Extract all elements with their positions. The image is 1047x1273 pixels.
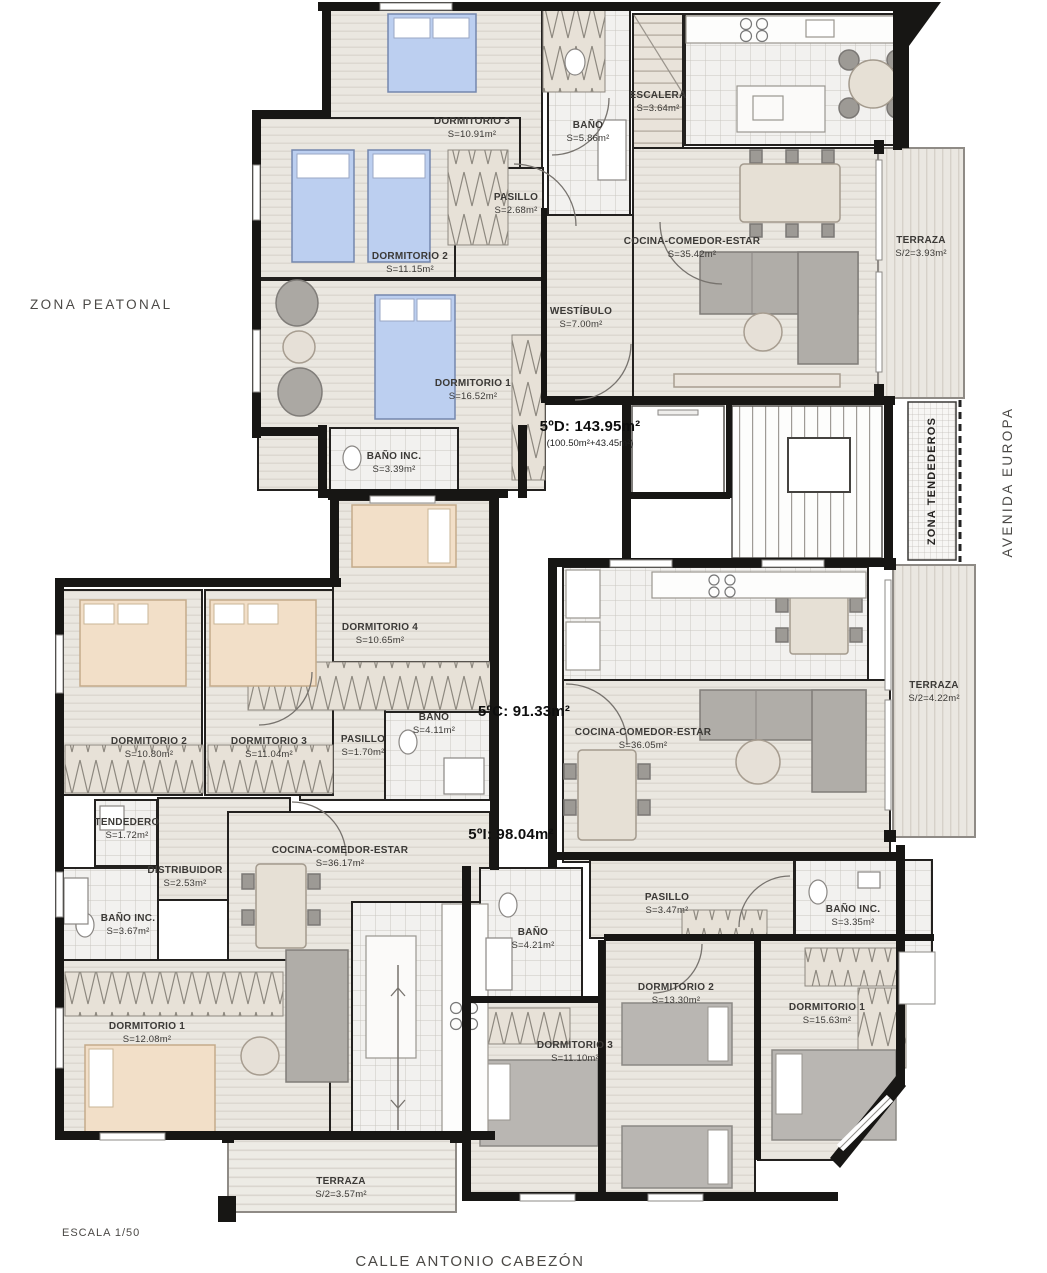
room-area: S=11.15m² [386, 264, 434, 275]
room-area: S/2=3.93m² [895, 248, 946, 259]
sink [858, 872, 880, 888]
apartment-label-5d: 5ºD: 143.95m² [540, 418, 641, 435]
room-label: COCINA-COMEDOR-ESTAR [575, 727, 712, 738]
toilet [565, 49, 585, 75]
single-bed [368, 150, 430, 262]
stairs-label: ESCALERA [629, 90, 686, 101]
room-area: S=16.52m² [449, 391, 498, 402]
room-label: TENDEDERO [94, 817, 159, 828]
bed [480, 1060, 598, 1146]
apartment-label-5c: 5ºC: 91.33m² [478, 703, 570, 720]
core-floors [632, 400, 960, 562]
window [876, 272, 882, 372]
street-label-left: ZONA PEATONAL [30, 297, 172, 312]
elevator-cab [650, 422, 706, 478]
room-area: S=3.67m² [106, 926, 149, 937]
street-label-right: AVENIDA EUROPA [1000, 407, 1015, 558]
room-label: TERRAZA [316, 1176, 366, 1187]
room-label: DISTRIBUIDOR [147, 865, 223, 876]
window [876, 160, 882, 260]
room-label: BAÑO INC. [101, 911, 155, 924]
window [56, 872, 63, 917]
stairs-area: S=3.64m² [636, 103, 679, 114]
room-label: DORMITORIO 1 [109, 1021, 185, 1032]
window [253, 165, 260, 220]
room-area: S=10.65m² [356, 635, 405, 646]
room-area: S/2=3.57m² [315, 1189, 366, 1200]
room-label: BAÑO INC. [367, 449, 421, 462]
room-area: S=35.42m² [668, 249, 717, 260]
room-label: WESTÍBULO [550, 304, 612, 317]
floor-plan-svg: DORMITORIO 3 S=10.91m² BAÑO S=5.86m² PAS… [0, 0, 1047, 1273]
window [885, 580, 891, 690]
elevator-door [658, 410, 698, 415]
double-bed [375, 295, 455, 419]
window [253, 330, 260, 392]
apartment-sublabel-5d: (100.50m²+43.45m²) [547, 438, 634, 449]
window [762, 560, 824, 567]
bed [352, 505, 456, 567]
window [56, 635, 63, 693]
room-label: COCINA-COMEDOR-ESTAR [624, 236, 761, 247]
room-label: DORMITORIO 2 [111, 736, 187, 747]
room-area: S=36.17m² [316, 858, 365, 869]
room-label: BAÑO [518, 925, 548, 938]
wardrobe [482, 1008, 570, 1044]
room-area: S=7.00m² [559, 319, 602, 330]
bed [210, 600, 316, 686]
room-label: DORMITORIO 2 [638, 982, 714, 993]
bed [622, 1003, 732, 1065]
window [648, 1194, 703, 1201]
bathtub [486, 938, 512, 990]
stair-landing [788, 438, 850, 492]
room-area: S/2=4.22m² [908, 693, 959, 704]
bed [85, 1045, 215, 1133]
room-area: S=11.04m² [245, 749, 293, 760]
bed [772, 1050, 896, 1140]
shower [444, 758, 484, 794]
room-label: DORMITORIO 3 [231, 736, 307, 747]
room-area: S=1.72m² [105, 830, 148, 841]
room-label: BAÑO [419, 710, 449, 723]
room-label: BAÑO [573, 118, 603, 131]
room-label: DORMITORIO 4 [342, 622, 418, 633]
bed [622, 1126, 732, 1188]
room-area: S=11.10m² [551, 1053, 599, 1064]
room-label: DORMITORIO 1 [435, 378, 511, 389]
wardrobe [682, 910, 767, 938]
drying-zone-label: ZONA TENDEDEROS [926, 417, 938, 545]
room-label: DORMITORIO 3 [537, 1040, 613, 1051]
room-label: PASILLO [645, 892, 689, 903]
room-area: S=2.68m² [494, 205, 537, 216]
bathtub [64, 878, 88, 924]
room-label: TERRAZA [896, 235, 946, 246]
room-label: DORMITORIO 3 [434, 116, 510, 127]
double-bed [388, 14, 476, 92]
window-bay [899, 952, 935, 1004]
room-area: S=1.70m² [341, 747, 384, 758]
room-area: S=3.47m² [645, 905, 688, 916]
scale-label: ESCALA 1/50 [62, 1227, 140, 1239]
room-area: S=3.39m² [372, 464, 415, 475]
terraza-5i [228, 1138, 456, 1212]
room-area: S=5.86m² [566, 133, 609, 144]
street-label-bottom: CALLE ANTONIO CABEZÓN [355, 1253, 584, 1270]
window [885, 700, 891, 810]
toilet [499, 893, 517, 917]
window [56, 1008, 63, 1068]
room-label: TERRAZA [909, 680, 959, 691]
room-label: DORMITORIO 1 [789, 1002, 865, 1013]
window [520, 1194, 575, 1201]
room-area: S=4.21m² [511, 940, 554, 951]
single-bed [292, 150, 354, 262]
room-label: BAÑO INC. [826, 902, 880, 915]
room-label: DORMITORIO 2 [372, 251, 448, 262]
window [610, 560, 672, 567]
room-label: PASILLO [494, 192, 538, 203]
window [370, 496, 435, 503]
toilet [343, 446, 361, 470]
room-area: S=12.08m² [123, 1034, 172, 1045]
bed [80, 600, 186, 686]
room-label: PASILLO [341, 734, 385, 745]
apartment-label-5i: 5ºI: 98.04m² [468, 826, 553, 843]
armchairs [276, 280, 322, 416]
room-area: S=10.91m² [448, 129, 497, 140]
floor-plan: DORMITORIO 3 S=10.91m² BAÑO S=5.86m² PAS… [0, 0, 1047, 1273]
room-area: S=15.63m² [803, 1015, 852, 1026]
room-area: S=10.80m² [125, 749, 174, 760]
room-label: COCINA-COMEDOR-ESTAR [272, 845, 409, 856]
toilet [809, 880, 827, 904]
terraza-5d [878, 148, 964, 398]
dining-table [740, 150, 840, 237]
wardrobe [512, 335, 545, 480]
room-area: S=4.11m² [413, 725, 455, 736]
room-area: S=3.35m² [831, 917, 874, 928]
window [100, 1133, 165, 1140]
room-area: S=36.05m² [619, 740, 668, 751]
window [380, 3, 452, 10]
wardrobe [65, 972, 283, 1016]
room-area: S=13.30m² [652, 995, 701, 1006]
room-area: S=2.53m² [163, 878, 206, 889]
wardrobe [805, 948, 897, 986]
room-escalera [633, 14, 683, 152]
